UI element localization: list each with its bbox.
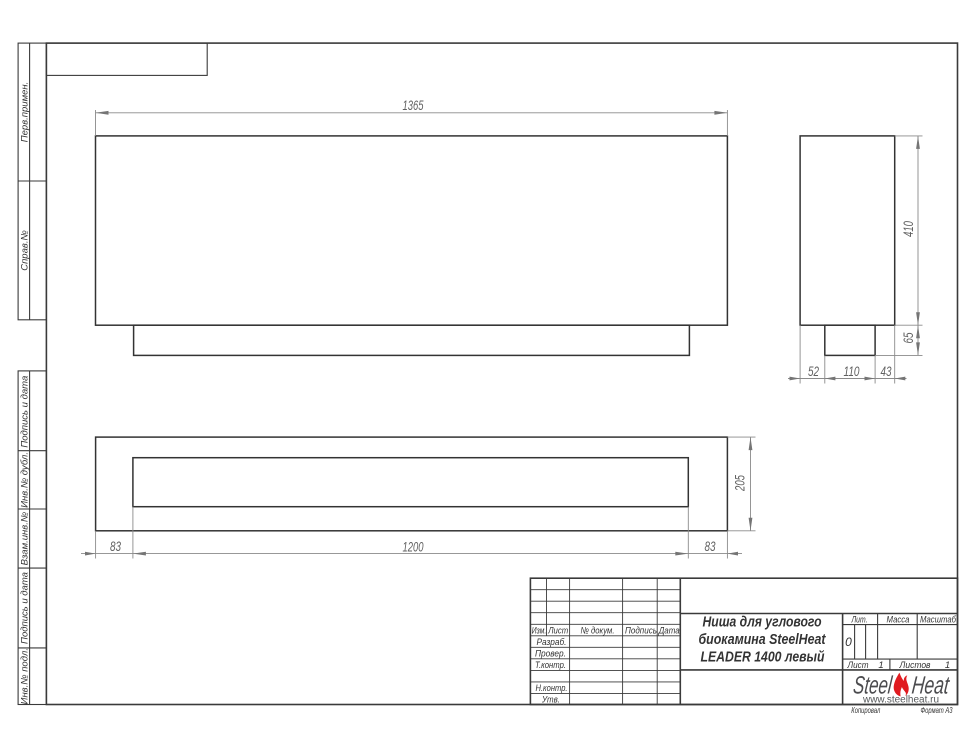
svg-text:1: 1 — [945, 660, 950, 671]
svg-text:Н.контр.: Н.контр. — [536, 683, 568, 694]
svg-text:Подпись и дата: Подпись и дата — [20, 376, 31, 448]
svg-text:Справ.№: Справ.№ — [20, 230, 31, 271]
svg-text:www.steelheat.ru: www.steelheat.ru — [862, 694, 939, 705]
svg-text:Ниша для углового: Ниша для углового — [703, 615, 822, 631]
svg-text:83: 83 — [110, 539, 121, 554]
svg-text:Инв.№ подл.: Инв.№ подл. — [20, 648, 31, 704]
svg-text:Дата: Дата — [658, 625, 680, 636]
svg-text:Т.контр.: Т.контр. — [535, 660, 566, 671]
svg-text:110: 110 — [844, 364, 860, 379]
svg-text:Разраб.: Разраб. — [537, 637, 567, 648]
svg-text:0: 0 — [845, 635, 852, 649]
svg-text:Перв.примен.: Перв.примен. — [20, 82, 31, 143]
svg-text:LEADER 1400 левый: LEADER 1400 левый — [701, 650, 825, 666]
svg-text:1200: 1200 — [403, 539, 424, 554]
svg-text:1: 1 — [878, 660, 883, 671]
svg-text:Изм.: Изм. — [532, 625, 547, 636]
svg-text:Взам.инв.№: Взам.инв.№ — [20, 512, 31, 565]
svg-text:Копировал: Копировал — [851, 705, 880, 715]
svg-text:52: 52 — [808, 364, 819, 379]
svg-text:Листов: Листов — [899, 660, 931, 671]
svg-text:205: 205 — [733, 475, 748, 492]
svg-text:Лит.: Лит. — [851, 614, 868, 625]
svg-text:Утв.: Утв. — [541, 695, 560, 706]
svg-text:Провер.: Провер. — [535, 649, 566, 660]
svg-text:Лист: Лист — [547, 625, 568, 636]
svg-text:1365: 1365 — [403, 98, 424, 113]
svg-text:Масса: Масса — [887, 614, 910, 625]
svg-text:43: 43 — [881, 364, 892, 379]
svg-text:Инв.№ дубл.: Инв.№ дубл. — [20, 452, 31, 508]
svg-text:Формат А3: Формат А3 — [921, 705, 953, 715]
svg-text:Масштаб: Масштаб — [920, 614, 957, 625]
svg-text:№ докум.: № докум. — [581, 625, 615, 636]
svg-text:биокамина SteelHeat: биокамина SteelHeat — [699, 632, 827, 648]
svg-text:Подпись: Подпись — [625, 625, 657, 636]
svg-text:Подпись и дата: Подпись и дата — [20, 572, 31, 644]
svg-text:83: 83 — [705, 539, 716, 554]
svg-text:Лист: Лист — [847, 660, 869, 671]
svg-text:65: 65 — [901, 332, 916, 343]
svg-text:410: 410 — [901, 221, 916, 237]
